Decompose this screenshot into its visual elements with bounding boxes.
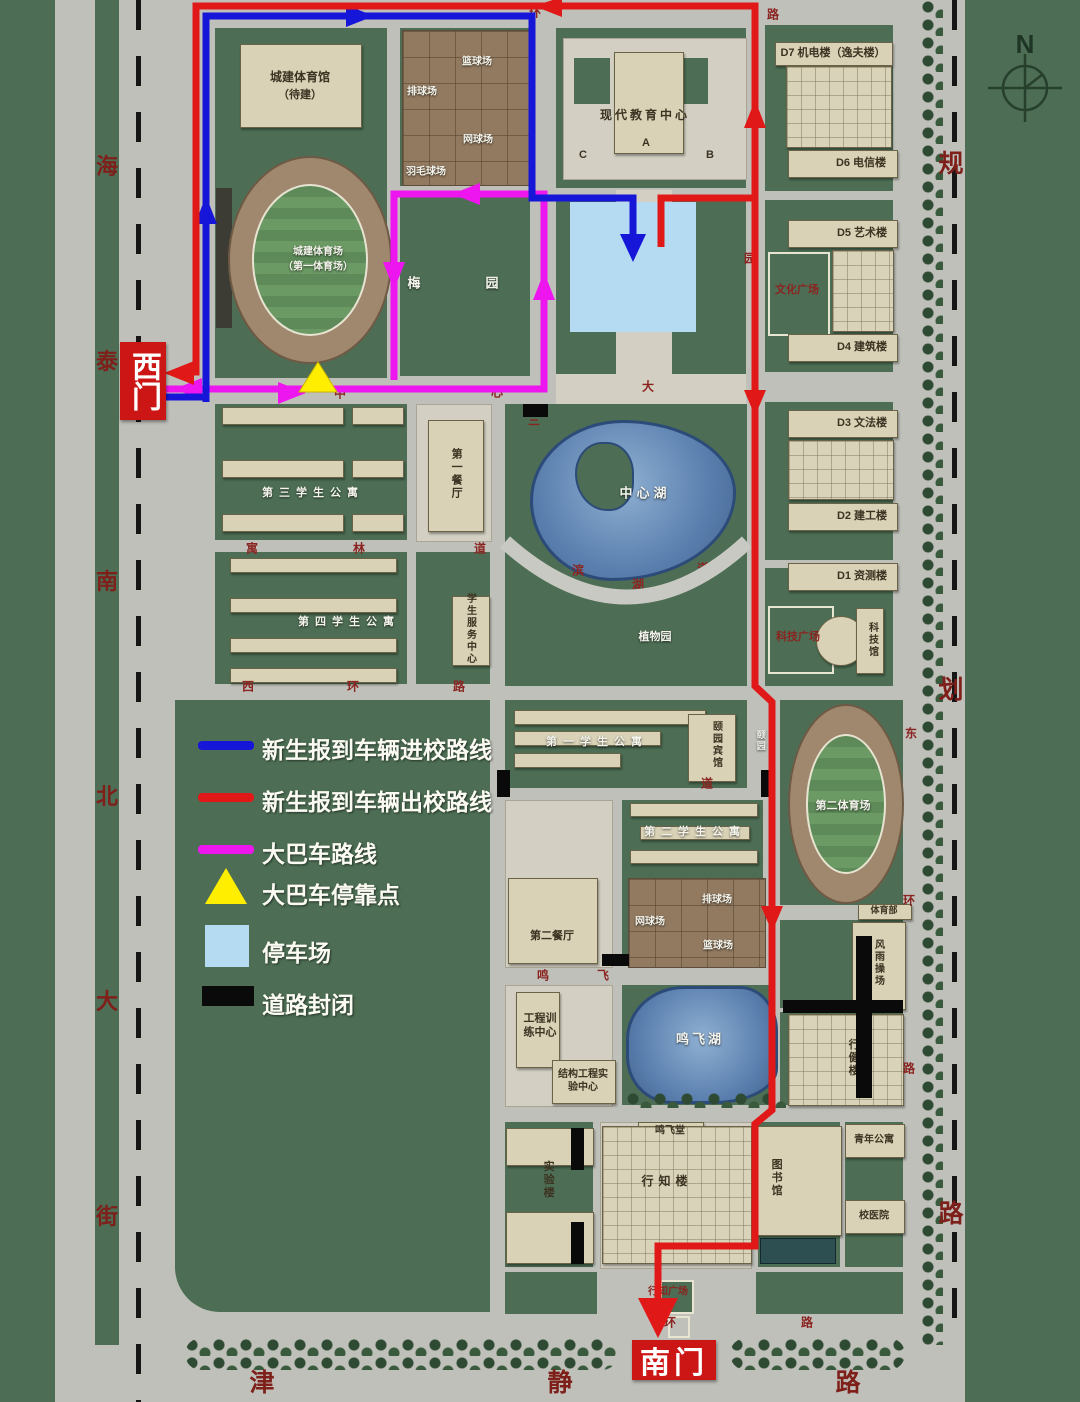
building-footprint — [352, 407, 404, 425]
enter-route-arrow-up — [195, 196, 217, 224]
d1-label: D1 资测楼 — [837, 569, 887, 583]
stadium1-label: 城建体育场 — [293, 246, 343, 259]
edu-courtyard-west — [574, 58, 610, 104]
apt1-label: 第一学生公寓 — [546, 735, 648, 749]
south-green-east — [756, 1272, 903, 1314]
eng-training-label: 工程训练中心 — [523, 1012, 557, 1041]
bus-route-arrow-right — [278, 382, 306, 404]
enter-route-arrow-right — [346, 5, 374, 27]
road-char: 路 — [453, 678, 465, 695]
building-footprint — [514, 710, 706, 725]
road-char: 路 — [767, 6, 779, 23]
canteen1-label: 第一餐厅 — [449, 448, 463, 500]
left-street-median — [95, 0, 119, 1345]
pe-dept-label: 体育部 — [870, 905, 897, 917]
apt2-label: 第二学生公寓 — [644, 825, 746, 839]
d5-label: D5 艺术楼 — [837, 226, 887, 240]
legend-exit-label: 新生报到车辆出校路线 — [262, 783, 492, 817]
road-char: 环 — [529, 4, 541, 21]
legend-busstop-label: 大巴车停靠点 — [262, 876, 400, 910]
road-char: 环 — [664, 1314, 676, 1331]
exit-route-arrow-up — [744, 100, 766, 128]
building-footprint — [222, 514, 344, 532]
north-courts — [402, 30, 532, 186]
campus-map: 城建体育馆 （待建） 篮球场 排球场 网球场 羽毛球场 城建体育场 （第一体育场… — [0, 0, 1080, 1402]
building-footprint — [352, 514, 404, 532]
legend-bus-label: 大巴车路线 — [262, 835, 377, 869]
d4-label: D4 建筑楼 — [837, 340, 887, 354]
road-closed-bar — [761, 770, 774, 797]
road-closed-bar — [571, 1128, 584, 1170]
road-char: 园 — [744, 250, 756, 267]
legend-enter-label: 新生报到车辆进校路线 — [262, 731, 492, 765]
road-char: 寓 — [246, 540, 258, 557]
street-right-char: 划 — [938, 670, 963, 706]
road-char: 环 — [347, 678, 359, 695]
street-bottom-char: 静 — [547, 1363, 572, 1399]
building-footprint — [352, 460, 404, 478]
parking-lot — [570, 202, 696, 332]
compass-north-label: N — [1016, 28, 1035, 62]
tech-museum-label: 科技馆 — [866, 622, 879, 658]
building-footprint — [514, 753, 621, 768]
botanic-garden-label: 植物园 — [639, 630, 672, 644]
street-bottom-char: 路 — [835, 1363, 860, 1399]
road-char: 路 — [801, 1314, 813, 1331]
d6-label: D6 电信楼 — [836, 156, 886, 170]
xingzhi-plaza-label: 行知广场 — [648, 1286, 688, 1299]
canteen2-building — [508, 878, 598, 964]
building-footprint — [786, 66, 892, 148]
block-a-label: A — [642, 136, 650, 150]
legend-enter-swatch — [198, 741, 254, 750]
road-char: 路 — [903, 1060, 915, 1077]
building-footprint — [222, 460, 344, 478]
culture-plaza-label: 文化广场 — [775, 283, 819, 297]
building-footprint — [630, 850, 758, 864]
yiyuan-label: 颐园 — [754, 730, 766, 752]
road-char: 大 — [642, 378, 654, 395]
street-bottom-char: 津 — [249, 1363, 274, 1399]
south-basketball-label: 篮球场 — [703, 940, 733, 953]
south-volleyball-label: 排球场 — [702, 894, 732, 907]
gym-label-2: （待建） — [278, 88, 322, 102]
hotel-label: 颐园宾馆 — [710, 721, 723, 769]
stadium2-label: 第二体育场 — [816, 799, 871, 813]
struct-lab-label: 结构工程实验中心 — [554, 1068, 612, 1094]
road-char: 滨 — [572, 562, 584, 579]
edu-center-label: 现代教育中心 — [600, 108, 690, 124]
road-char: 飞 — [597, 967, 609, 984]
legend-exit-swatch — [198, 793, 254, 802]
block-c-label: C — [579, 148, 587, 162]
lab-building-label: 实验楼 — [541, 1161, 555, 1200]
apt4-label: 第四学生公寓 — [298, 615, 400, 629]
north-volleyball-label: 排球场 — [407, 86, 437, 99]
xingzhi-label: 行知楼 — [641, 1174, 692, 1190]
building-footprint — [760, 1238, 836, 1264]
d2-label: D2 建工楼 — [837, 509, 887, 523]
road-char: 道 — [474, 540, 486, 557]
north-basketball-label: 篮球场 — [462, 56, 492, 69]
building-footprint — [230, 558, 397, 573]
road-closed-bar — [602, 954, 629, 966]
hospital-label: 校医院 — [859, 1210, 889, 1223]
d3-label: D3 文法楼 — [837, 416, 887, 430]
road-char: 鸣 — [537, 967, 549, 984]
north-badminton-label: 羽毛球场 — [406, 166, 446, 179]
building-footprint — [832, 250, 894, 332]
left-street-lane-marks — [136, 0, 141, 1402]
street-left-char: 北 — [96, 779, 118, 811]
road-char: 心 — [491, 384, 503, 401]
legend-busstop-swatch — [205, 868, 247, 904]
building-footprint — [230, 668, 397, 683]
street-left-char: 大 — [96, 984, 118, 1016]
youth-apt-label: 青年公寓 — [854, 1134, 894, 1147]
legend-parking-label: 停车场 — [262, 934, 331, 968]
street-right-char: 规 — [938, 144, 963, 180]
xingzhi-building — [602, 1126, 752, 1264]
block-b-label: B — [706, 148, 714, 162]
street-left-char: 街 — [96, 1199, 118, 1231]
road-char: 中 — [334, 385, 346, 402]
street-left-char: 海 — [96, 149, 118, 181]
street-right-char: 路 — [938, 1194, 963, 1230]
gym-label: 城建体育馆 — [270, 70, 330, 86]
bus-route-arrow-gate — [174, 378, 202, 400]
bus-route-arrow-up — [533, 272, 555, 300]
tech-plaza-label: 科技广场 — [776, 630, 820, 644]
building-footprint — [230, 598, 397, 613]
street-left-char: 泰 — [96, 344, 118, 376]
legend-closed-label: 道路封闭 — [262, 986, 354, 1020]
road-char: 环 — [903, 892, 915, 909]
service-center-label: 学生服务中心 — [464, 593, 477, 665]
gym-building — [240, 44, 362, 128]
meiyuan-label: 梅 园 — [407, 276, 524, 293]
stadium1-label-2: （第一体育场） — [283, 261, 353, 274]
road-closed-bar — [783, 1000, 903, 1013]
building-footprint — [630, 803, 758, 817]
mingfei-hall-label: 鸣飞堂 — [655, 1125, 685, 1138]
central-lake-label: 中心湖 — [619, 486, 670, 503]
exit-route-arrow-down-1 — [744, 390, 766, 416]
south-tree-row-east — [730, 1338, 905, 1370]
south-tennis-label: 网球场 — [635, 916, 665, 929]
south-green-west — [505, 1272, 597, 1314]
road-closed-bar — [856, 936, 872, 1098]
d7-label: D7 机电楼（逸夫楼） — [780, 46, 885, 60]
road-char: 道 — [701, 775, 713, 792]
street-left-char: 南 — [96, 564, 118, 596]
road-char: 道 — [697, 560, 709, 577]
legend-closed-swatch — [202, 986, 254, 1006]
canteen2-label: 第二餐厅 — [530, 929, 574, 943]
west-gate-label: 西门 — [120, 342, 166, 420]
south-gate-label: 南门 — [632, 1340, 716, 1380]
building-footprint — [222, 407, 344, 425]
road-char: 湖 — [632, 576, 644, 593]
apt3-label: 第三学生公寓 — [262, 486, 364, 500]
library-label: 图书馆 — [769, 1159, 783, 1198]
road-closed-bar — [571, 1222, 584, 1264]
windrain-label: 风雨操场 — [872, 939, 885, 987]
mingfei-lake-trees — [626, 1092, 786, 1108]
legend-parking-swatch — [205, 925, 249, 967]
mingfei-lake-label: 鸣飞湖 — [676, 1032, 724, 1049]
building-footprint — [230, 638, 397, 653]
building-footprint — [788, 440, 894, 500]
north-tennis-label: 网球场 — [463, 134, 493, 147]
road-closed-bar — [523, 404, 548, 417]
road-char: 东 — [905, 725, 917, 742]
east-roadside-green — [965, 0, 1080, 1402]
west-roadside-green — [0, 0, 55, 1402]
legend-bus-swatch — [198, 845, 254, 854]
road-char: 西 — [242, 678, 254, 695]
exit-route-arrow-westgate — [164, 361, 194, 385]
road-char: 林 — [353, 540, 365, 557]
road-closed-bar — [497, 770, 510, 797]
